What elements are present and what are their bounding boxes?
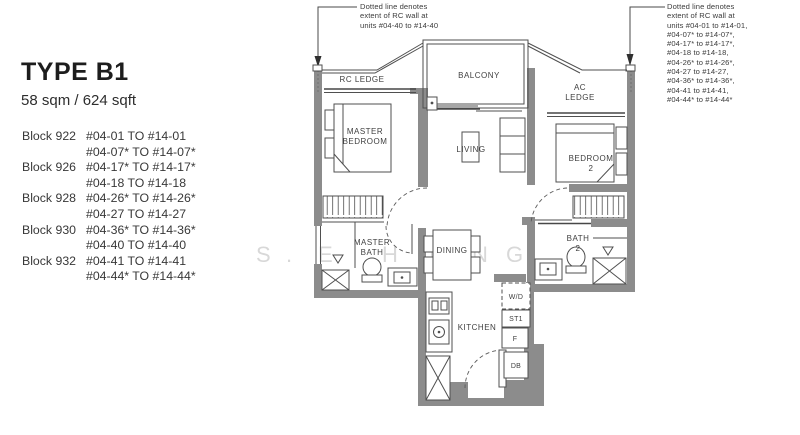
kitchen-counter (426, 292, 452, 352)
label-dining: DINING (437, 246, 468, 255)
floor-plan-drawing: RC LEDGE BALCONY AC LEDGE MASTER BEDROOM… (0, 0, 800, 435)
bath-window (316, 226, 321, 264)
chair (471, 257, 480, 273)
nightstand (616, 153, 627, 175)
sofa (500, 118, 525, 172)
label-bedroom2: BEDROOM (569, 154, 614, 163)
chair (424, 257, 433, 273)
nightstand (325, 110, 334, 130)
label-bath2: BATH (567, 234, 590, 243)
bedroom2-door-arc (531, 188, 567, 224)
leader-left (315, 7, 358, 67)
label-bedroom2: 2 (589, 164, 594, 173)
shower-drain (333, 255, 343, 263)
floor-plan-page: TYPE B1 58 sqm / 624 sqft Block 922#04-0… (0, 0, 800, 435)
nightstand (616, 127, 627, 149)
label-balcony: BALCONY (458, 71, 500, 80)
label-bath2: 2 (576, 244, 581, 253)
label-master-bedroom: MASTER (347, 127, 383, 136)
dining-table (433, 230, 471, 280)
shower-drain (603, 247, 613, 255)
entrance-door-arc (465, 350, 503, 388)
label-ac-ledge: LEDGE (565, 93, 595, 102)
nightstand (325, 138, 334, 158)
label-kitchen: KITCHEN (458, 323, 497, 332)
label-master-bath: BATH (361, 248, 384, 257)
chair (424, 236, 433, 252)
label-master-bath: MASTER (354, 238, 390, 247)
bedroom2-furniture (556, 124, 627, 182)
wardrobes (323, 196, 624, 218)
label-living: LIVING (456, 145, 485, 154)
label-fridge: F (513, 336, 518, 343)
label-store: ST1 (509, 316, 523, 323)
master-bedroom-door-arc (387, 188, 427, 228)
label-washer-dryer: W/D (509, 294, 524, 301)
chair (471, 236, 480, 252)
label-rc-ledge: RC LEDGE (340, 75, 385, 84)
leader-right (627, 7, 666, 66)
label-ac-ledge: AC (574, 83, 586, 92)
label-master-bedroom: BEDROOM (343, 137, 388, 146)
toilet (363, 258, 381, 276)
dining-furniture (424, 230, 480, 280)
label-db: DB (511, 363, 521, 370)
